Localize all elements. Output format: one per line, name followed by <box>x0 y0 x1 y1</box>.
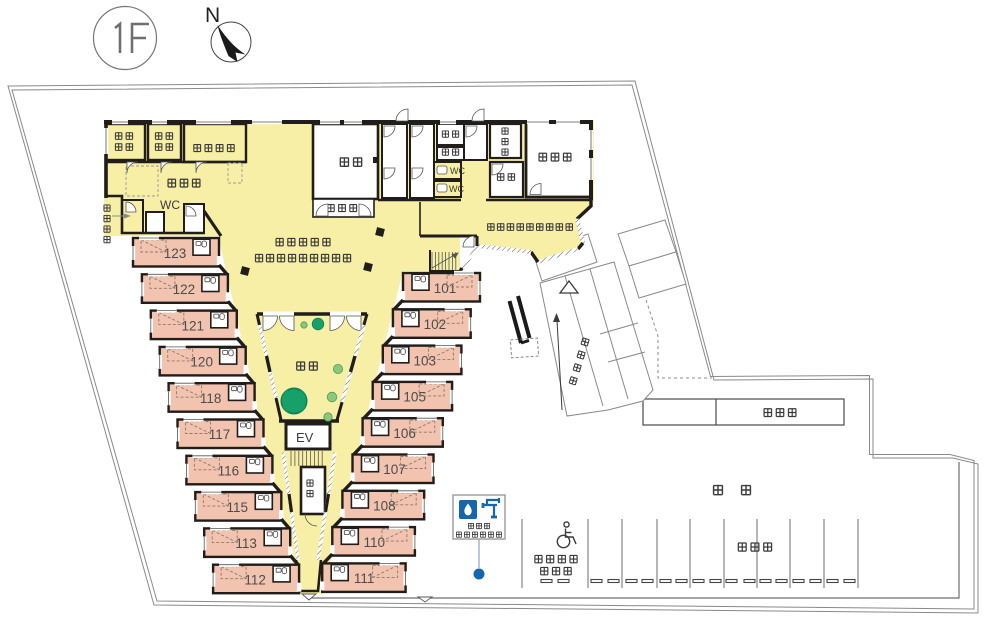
svg-text:WC: WC <box>449 184 464 194</box>
svg-text:121: 121 <box>182 318 205 333</box>
svg-text:115: 115 <box>227 500 249 515</box>
svg-text:111: 111 <box>354 571 375 586</box>
svg-text:WC: WC <box>160 198 180 212</box>
svg-text:106: 106 <box>393 426 416 441</box>
svg-text:122: 122 <box>173 282 196 297</box>
svg-text:N: N <box>205 4 220 27</box>
svg-text:103: 103 <box>414 353 437 368</box>
svg-text:102: 102 <box>424 317 447 332</box>
svg-text:112: 112 <box>244 573 266 588</box>
svg-text:116: 116 <box>218 464 240 479</box>
svg-text:108: 108 <box>373 499 396 514</box>
svg-text:EV: EV <box>296 430 314 445</box>
svg-text:120: 120 <box>190 355 213 370</box>
svg-text:105: 105 <box>403 390 426 405</box>
svg-text:WC: WC <box>450 166 465 176</box>
svg-text:107: 107 <box>383 462 406 477</box>
svg-text:118: 118 <box>200 391 222 406</box>
svg-text:101: 101 <box>434 281 457 296</box>
svg-text:123: 123 <box>164 246 187 261</box>
svg-text:117: 117 <box>209 427 231 442</box>
svg-text:113: 113 <box>235 536 257 551</box>
